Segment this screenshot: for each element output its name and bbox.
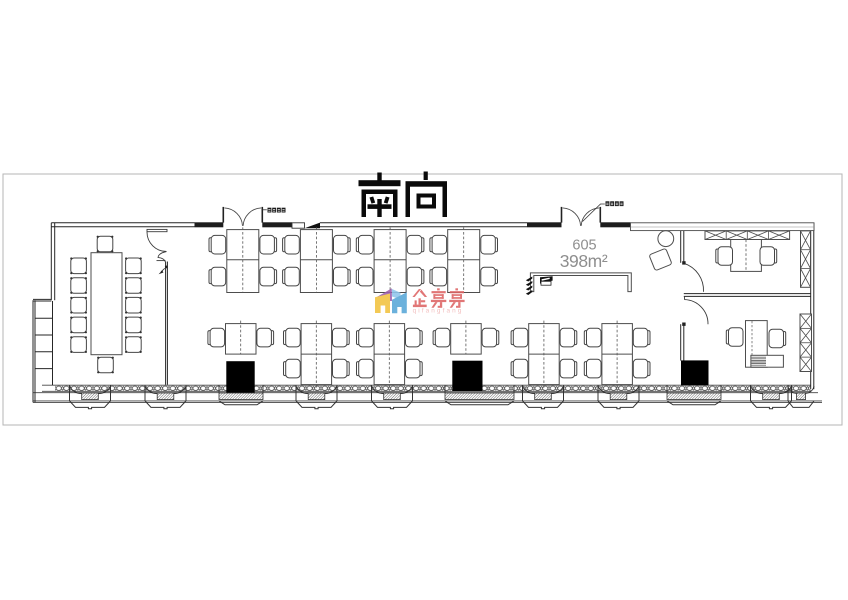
- svg-text:qifangfang: qifangfang: [413, 308, 464, 315]
- svg-text:398m²: 398m²: [560, 251, 608, 271]
